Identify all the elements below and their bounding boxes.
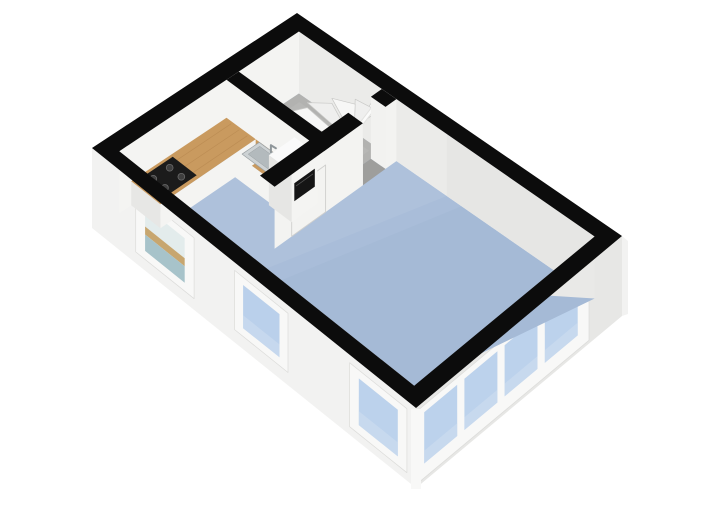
floorplan-3d-canvas bbox=[0, 0, 720, 509]
floorplan-3d-view bbox=[0, 0, 720, 509]
exterior-east-corner-edge bbox=[622, 236, 628, 316]
partition-p2-face bbox=[386, 99, 397, 169]
doorway-jamb bbox=[371, 97, 386, 169]
burner bbox=[178, 173, 185, 180]
corner-post bbox=[411, 409, 421, 489]
burner bbox=[166, 164, 173, 171]
